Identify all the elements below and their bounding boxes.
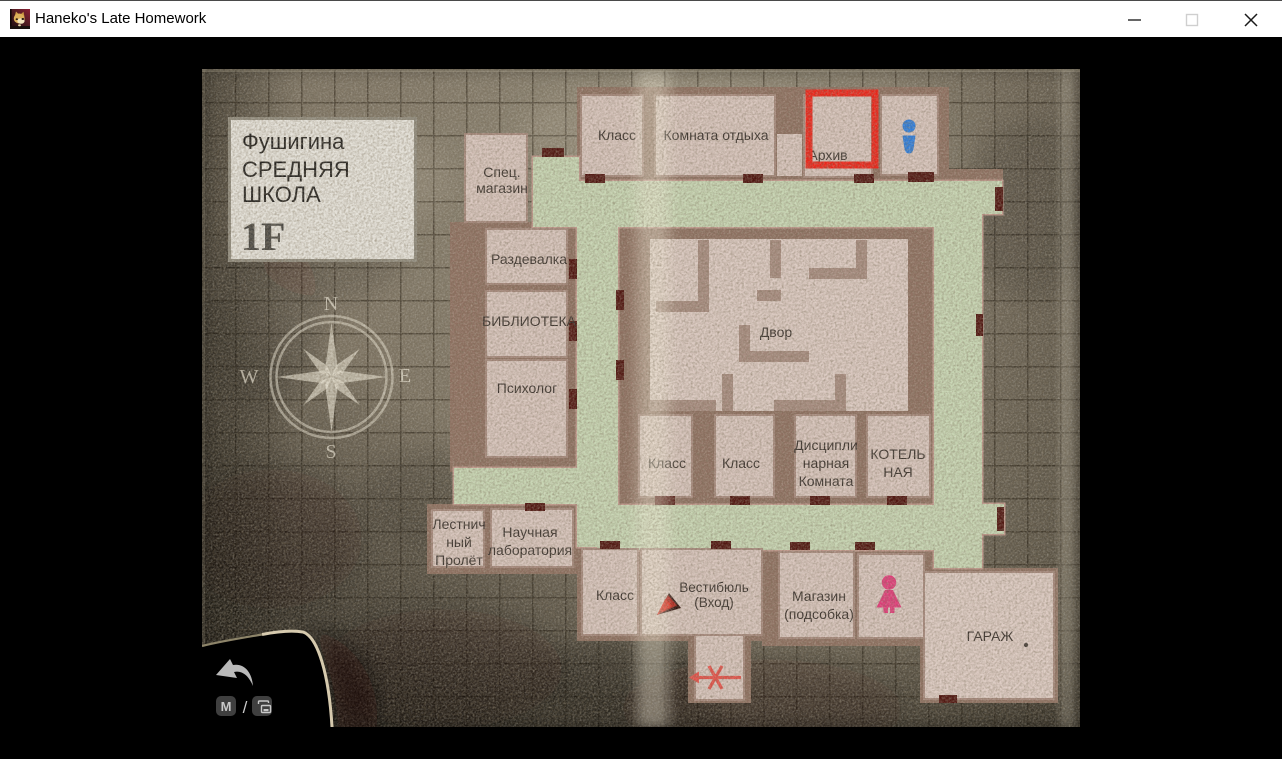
svg-text:/: / — [243, 698, 248, 717]
svg-text:M: M — [221, 699, 232, 714]
